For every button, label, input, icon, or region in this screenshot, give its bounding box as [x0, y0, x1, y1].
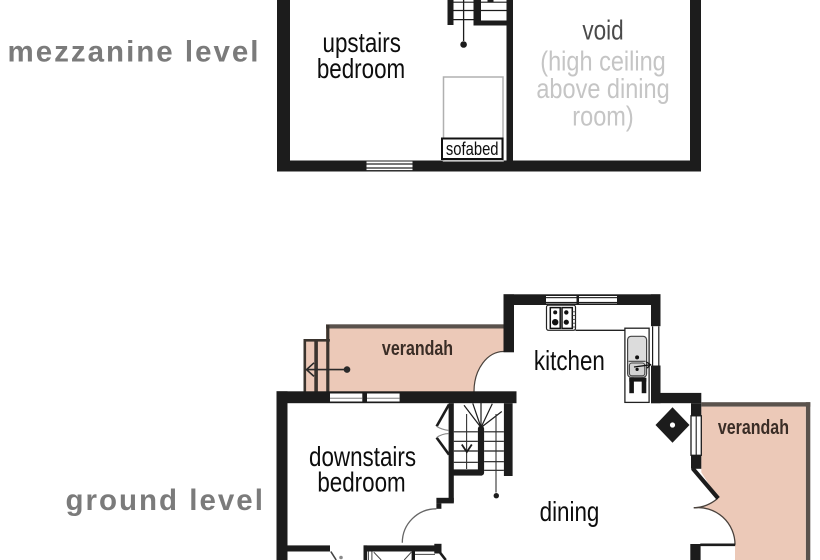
svg-text:verandah: verandah: [718, 416, 789, 438]
svg-text:(high ceiling: (high ceiling: [540, 47, 665, 77]
svg-text:dining: dining: [540, 497, 600, 528]
svg-text:verandah: verandah: [382, 337, 453, 359]
svg-text:above dining: above dining: [536, 74, 669, 104]
svg-text:bedroom: bedroom: [317, 54, 405, 85]
svg-text:mezzanine level: mezzanine level: [8, 36, 261, 69]
svg-text:void: void: [582, 15, 623, 46]
svg-text:room): room): [572, 102, 633, 132]
svg-text:kitchen: kitchen: [534, 346, 605, 377]
svg-text:ground level: ground level: [66, 484, 265, 517]
svg-text:sofabed: sofabed: [446, 138, 499, 159]
svg-text:bedroom: bedroom: [317, 467, 405, 498]
